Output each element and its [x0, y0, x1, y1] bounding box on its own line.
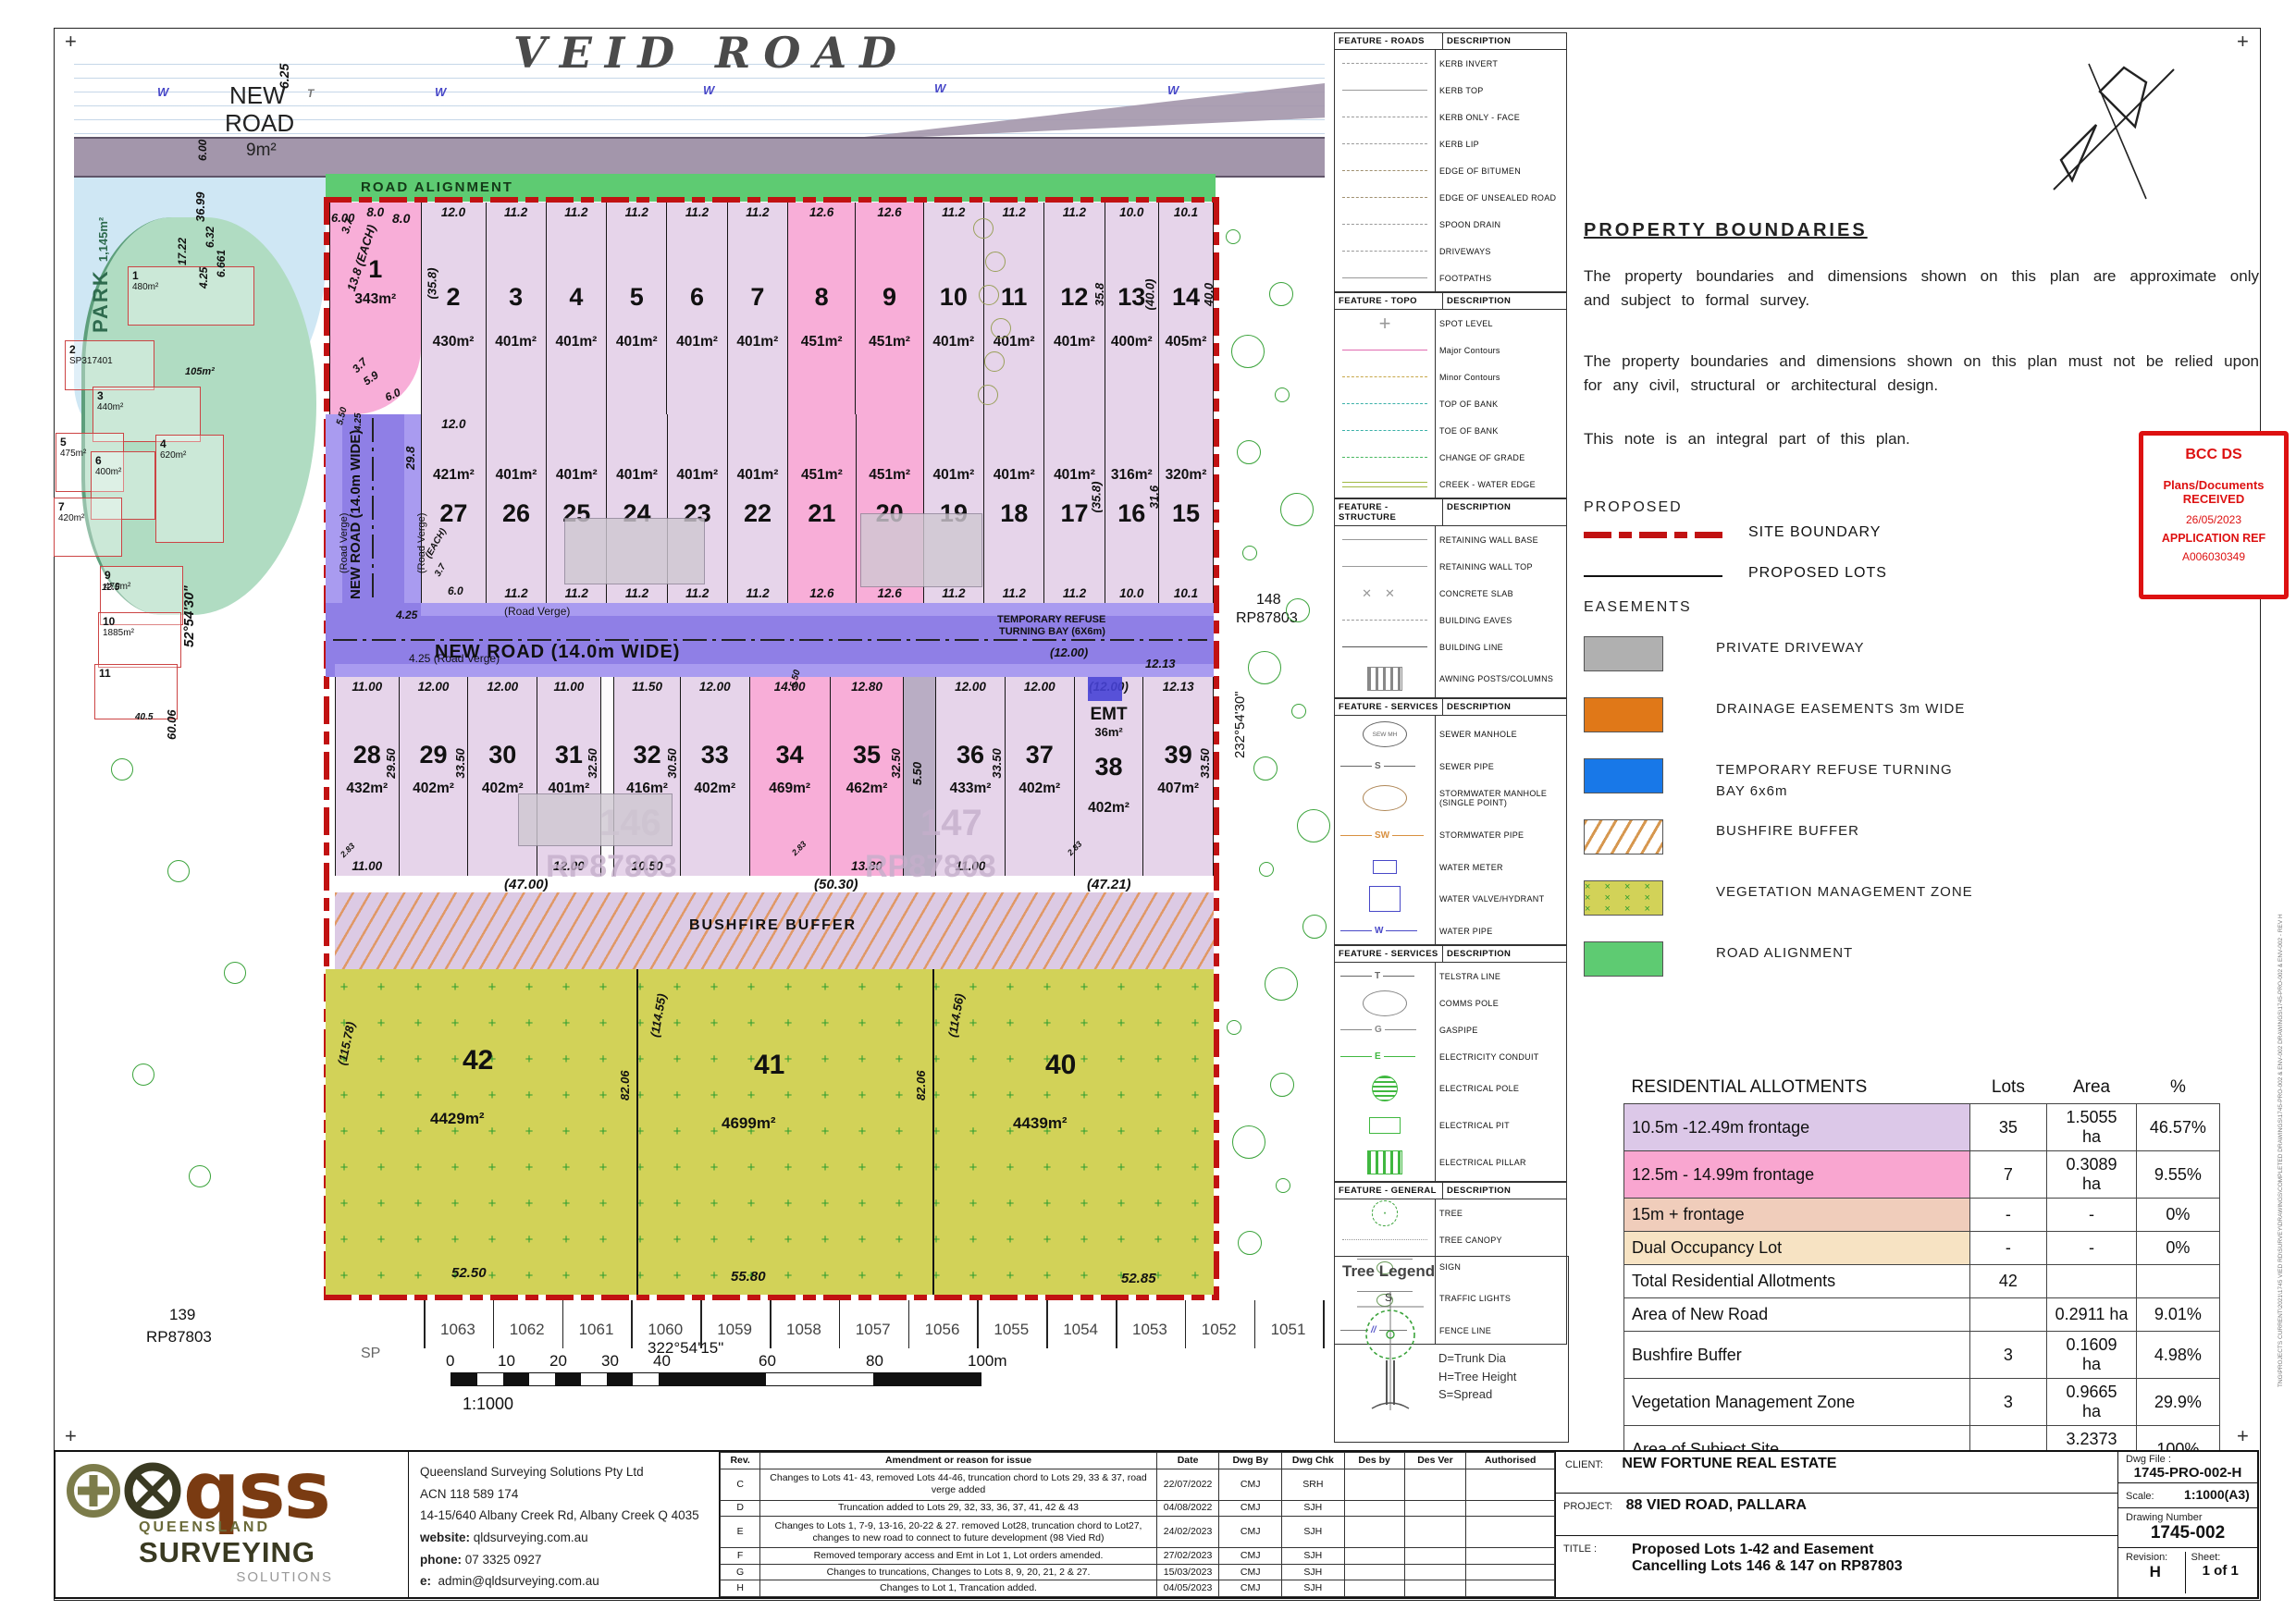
revision-cell: [1404, 1469, 1466, 1500]
legend-label: BUILDING EAVES: [1436, 614, 1566, 627]
legend-label: ELECTRICAL POLE: [1436, 1082, 1566, 1095]
boundary-tick: [908, 1300, 910, 1348]
allotments-row: Vegetation Management Zone30.9665 ha29.9…: [1624, 1379, 2220, 1426]
legend-row: KERB INVERT: [1335, 50, 1566, 77]
lot-rear-width: 10.1: [1159, 586, 1213, 600]
qss-logo-circle-plus-icon: [65, 1462, 122, 1519]
revision-row: GChanges to truncations, Changes to Lots…: [721, 1564, 1555, 1580]
new-road-centerline: [333, 639, 1207, 641]
vmz-dim: 82.06: [618, 1070, 632, 1100]
lot-depth: (35.8): [425, 268, 438, 300]
road-verge-bottom-label: 4.25 (Road Verge): [409, 652, 500, 665]
neighbor-right-no: 148: [1256, 592, 1281, 609]
lot-frontage: 10.1: [1159, 205, 1213, 219]
legend-symbol-driveways-icon: [1335, 238, 1436, 264]
west-lot-2: 2SP317401: [65, 340, 154, 390]
easement-swatch-green: [1584, 941, 1663, 977]
tree-icon: [167, 860, 190, 882]
tree-icon: [1276, 1178, 1290, 1193]
lot-rear-width: 11.2: [984, 586, 1043, 600]
revision-cell: 27/02/2023: [1156, 1548, 1219, 1565]
client-name: NEW FORTUNE REAL ESTATE: [1622, 1456, 1836, 1471]
legend-label: CHANGE OF GRADE: [1436, 451, 1566, 464]
legend-label: GASPIPE: [1436, 1024, 1566, 1037]
lot-41-width: 55.80: [731, 1269, 766, 1285]
lot-number: 15: [1159, 499, 1213, 528]
legend-row: BUILDING LINE: [1335, 633, 1566, 660]
legend-symbol-gaspipe-icon: G: [1335, 1016, 1436, 1043]
legend-row: TOE OF BANK: [1335, 417, 1566, 444]
lot-area: 401m²: [487, 334, 546, 350]
legend-symbol-building-eaves-icon: [1335, 607, 1436, 633]
corner-mark: +: [65, 1424, 77, 1448]
legend-label: KERB ONLY - FACE: [1436, 111, 1566, 124]
legend-row: ELECTRICAL PIT: [1335, 1107, 1566, 1144]
lot-frontage: 11.2: [667, 205, 726, 219]
boundary-tick: [839, 1300, 841, 1348]
company-email: admin@qldsurveying.com.au: [438, 1574, 599, 1588]
boundary-tick: [977, 1300, 979, 1348]
lot-depth: (40.0): [1142, 278, 1156, 310]
lot-42-area: 4429m²: [430, 1110, 485, 1128]
temp-refuse-label-2: TURNING BAY (6X6m): [999, 626, 1105, 637]
lot-area: 432m²: [336, 781, 399, 797]
lot-area: 320m²: [1159, 467, 1213, 484]
boundary-tick: [700, 1300, 702, 1348]
legend-table-header: FEATURE - GENERAL: [1335, 1183, 1443, 1199]
lot-number: 37: [1006, 741, 1074, 769]
lot-17: 17401m²11.2(35.8): [1043, 414, 1104, 603]
legend-row: AWNING POSTS/COLUMNS: [1335, 660, 1566, 697]
lot-2: 12.02430m²(35.8): [421, 203, 486, 414]
legend-symbol-creek-water-edge-icon: [1335, 471, 1436, 498]
legend-symbol-edge-of-bitumen-icon: [1335, 157, 1436, 184]
allotments-cell: 46.57%: [2136, 1104, 2219, 1151]
tree-icon: [985, 252, 1006, 272]
lot-frontage: 11.2: [924, 205, 983, 219]
legend-symbol-kerb-only-face-icon: [1335, 104, 1436, 130]
legend-symbol-retaining-wall-top-icon: [1335, 553, 1436, 580]
dim-label: 6.661: [215, 250, 228, 277]
scale-tick-label: 40: [653, 1352, 671, 1371]
tree-legend-title: Tree Legend: [1335, 1257, 1568, 1286]
legend-symbol-kerb-lip-icon: [1335, 130, 1436, 157]
qss-logo-text: qss: [183, 1459, 329, 1523]
easement-label: BUSHFIRE BUFFER: [1716, 821, 1984, 842]
title-label: TITLE :: [1563, 1543, 1597, 1555]
lot-27: 12.027421m²: [421, 414, 486, 603]
lot-38: (12.00)38402m²EMT36m²: [1074, 677, 1143, 876]
allotments-header: Lots: [1969, 1071, 2047, 1104]
revision-cell: CMJ: [1219, 1580, 1282, 1597]
company-phone-label: phone:: [420, 1553, 462, 1567]
legend-row: COMMS POLE: [1335, 990, 1566, 1016]
lot-number: 8: [788, 283, 855, 312]
group-dim-3: (47.21): [1087, 877, 1131, 892]
legend-symbol-water-pipe-icon: W: [1335, 917, 1436, 944]
lot-7: 11.27401m²: [727, 203, 787, 414]
site-boundary-sample: [1584, 532, 1722, 538]
allotments-cell: Area of New Road: [1624, 1298, 1970, 1332]
lot-number: 6: [667, 283, 726, 312]
lot-34: 14.0034469m²: [749, 677, 830, 876]
corner-mark: +: [2237, 30, 2249, 54]
lot-area: 401m²: [547, 334, 606, 350]
lot-frontage: 12.0: [422, 205, 486, 219]
legend-row: GGASPIPE: [1335, 1016, 1566, 1043]
neighbor-lot-number: 1055: [994, 1321, 1029, 1339]
tree-icon: [1231, 335, 1265, 368]
legend-row: +SPOT LEVEL: [1335, 310, 1566, 337]
project-label: PROJECT:: [1563, 1501, 1612, 1512]
revision-header: Des Ver: [1404, 1453, 1466, 1469]
tree-icon: [1238, 1231, 1262, 1255]
lot-4: 11.24401m²: [546, 203, 606, 414]
dim-label: 17.22: [176, 238, 189, 265]
allotments-row: 15m + frontage--0%: [1624, 1199, 2220, 1232]
legend-row: ELECTRICAL POLE: [1335, 1070, 1566, 1107]
allotments-row: Bushfire Buffer30.1609 ha4.98%: [1624, 1332, 2220, 1379]
temp-refuse-label-1: TEMPORARY REFUSE: [997, 614, 1105, 625]
lot-29: 12.0029402m²33.50: [399, 677, 468, 876]
lot-22: 22401m²11.2: [727, 414, 787, 603]
revision-cell: [1404, 1500, 1466, 1517]
lot-frontage: 12.00: [936, 680, 1005, 694]
legend-row: WATER METER: [1335, 854, 1566, 880]
lot-26: 26401m²11.2: [486, 414, 546, 603]
dim-label: W: [703, 83, 714, 97]
allotments-header: RESIDENTIAL ALLOTMENTS: [1624, 1071, 1970, 1104]
lot-area: 401m²: [487, 467, 546, 484]
legend-label: KERB LIP: [1436, 138, 1566, 151]
legend-label: TREE: [1436, 1207, 1566, 1220]
lot-area: 407m²: [1143, 781, 1213, 797]
tree-icon: [132, 1064, 154, 1086]
allotments-header: Area: [2047, 1071, 2137, 1104]
legend-symbol-kerb-invert-icon: [1335, 50, 1436, 77]
allotments-cell: 42: [1969, 1265, 2047, 1298]
west-lot-number: 4: [156, 436, 223, 450]
veid-road-title: VEID ROAD: [513, 28, 909, 78]
legend-row: KERB TOP: [1335, 77, 1566, 104]
legend-row: CHANGE OF GRADE: [1335, 444, 1566, 471]
lot-number: 26: [487, 499, 546, 528]
lot-area: 430m²: [422, 334, 486, 350]
revision-row: DTruncation added to Lots 29, 32, 33, 36…: [721, 1500, 1555, 1517]
legend-label: TREE CANOPY: [1436, 1234, 1566, 1247]
tree-icon: [973, 218, 994, 239]
lot-depth: 32.50: [889, 748, 903, 779]
legend-row: Major Contours: [1335, 337, 1566, 363]
allotments-cell: -: [2047, 1199, 2137, 1232]
legend-row: RETAINING WALL TOP: [1335, 553, 1566, 580]
drawing-title-1: Proposed Lots 1-42 and Easement: [1632, 1542, 2110, 1558]
allotments-cell: 29.9%: [2136, 1379, 2219, 1426]
neighbor-lot-number: 1056: [925, 1321, 960, 1339]
lot-6: 11.26401m²: [666, 203, 726, 414]
revision-cell: [1344, 1564, 1404, 1580]
dim-label: 40.5: [135, 712, 153, 722]
lot-frontage: 12.00: [468, 680, 537, 694]
ghost-lot-147: 147: [920, 803, 982, 844]
tree-icon: [1232, 1125, 1265, 1159]
legend-symbol-tree-canopy-icon: [1335, 1226, 1436, 1253]
lot-frontage: 11.00: [537, 680, 600, 694]
allotments-cell: Dual Occupancy Lot: [1624, 1232, 1970, 1265]
revision-row: CChanges to Lots 41- 43, removed Lots 44…: [721, 1469, 1555, 1500]
qss-logo-circle-x-icon: [122, 1460, 183, 1521]
new-road-vertical-label: NEW ROAD (14.0m WIDE): [348, 430, 364, 599]
legend-symbol-electrical-pillar-icon: [1335, 1144, 1436, 1181]
allotments-cell: 9.55%: [2136, 1151, 2219, 1199]
allotments-row: Total Residential Allotments42: [1624, 1265, 2220, 1298]
temp-refuse-dim: (12.00): [1050, 646, 1088, 659]
lot-depth: 33.50: [990, 748, 1004, 779]
dim-label: 12.5: [102, 583, 119, 593]
lot-area: 402m²: [681, 781, 749, 797]
road-verge-label-w: (Road Verge): [339, 513, 350, 573]
dwgnum-value: 1745-002: [2126, 1523, 2250, 1543]
revision-row: FRemoved temporary access and Emt in Lot…: [721, 1548, 1555, 1565]
legend-label: CREEK - WATER EDGE: [1436, 478, 1566, 491]
lot-area: 400m²: [1105, 334, 1158, 350]
west-lot-area: 620m²: [156, 450, 223, 461]
allotments-cell: 4.98%: [2136, 1332, 2219, 1379]
lot-rear-width: 11.2: [728, 586, 787, 600]
bearing-right: 232°54'30": [1232, 691, 1248, 758]
lot-41-area: 4699m²: [722, 1114, 776, 1133]
lot-9: 12.69451m²: [855, 203, 922, 414]
legend-symbol-major-contours-icon: [1335, 337, 1436, 363]
revision-cell: SJH: [1282, 1500, 1345, 1517]
lot-row-2: 12.027421m²26401m²11.225401m²11.224401m²…: [421, 414, 1214, 603]
legend-label: STORMWATER MANHOLE (SINGLE POINT): [1436, 787, 1566, 809]
legend-row: ELECTRICAL PILLAR: [1335, 1144, 1566, 1181]
road-verge-top-label: (Road Verge): [504, 605, 570, 618]
revision-cell: CMJ: [1219, 1564, 1282, 1580]
sp-partial-label: SP: [361, 1346, 380, 1362]
lot-number: 4: [547, 283, 606, 312]
legend-row: BUILDING EAVES: [1335, 607, 1566, 633]
west-lot-area: 440m²: [93, 402, 200, 412]
lot-area: 433m²: [936, 781, 1005, 797]
legend-label: KERB TOP: [1436, 84, 1566, 97]
legend-symbol-toe-of-bank-icon: [1335, 417, 1436, 444]
lot-depth: (35.8): [1089, 481, 1103, 512]
legend-symbol-spoon-drain-icon: [1335, 211, 1436, 238]
dim-label: W: [435, 85, 446, 99]
road-verge-label-e: (Road Verge): [416, 513, 427, 573]
legend-label: BUILDING LINE: [1436, 641, 1566, 654]
legend-label: RETAINING WALL TOP: [1436, 560, 1566, 573]
neighbor-lot-number: 1063: [440, 1321, 475, 1339]
lot-frontage: 12.00: [1006, 680, 1074, 694]
allotments-cell: -: [1969, 1232, 2047, 1265]
lot-rear-width: 11.00: [336, 859, 399, 873]
lot-frontage: 12.80: [831, 680, 904, 694]
lot-12: 11.212401m²35.8: [1043, 203, 1104, 414]
west-lot-area: SP317401: [66, 356, 154, 366]
dwgnum-label: Drawing Number: [2126, 1512, 2250, 1523]
dim-label: 4.25: [353, 413, 364, 431]
legend-label: DRIVEWAYS: [1436, 245, 1566, 258]
legend-row: STORMWATER MANHOLE (SINGLE POINT): [1335, 780, 1566, 817]
company-web: qldsurveying.com.au: [474, 1531, 588, 1544]
lot-number: 22: [728, 499, 787, 528]
tree-icon: [1248, 651, 1281, 684]
company-acn: ACN 118 589 174: [420, 1483, 711, 1506]
neighbor-lot-number: 1053: [1132, 1321, 1167, 1339]
company-name: Queensland Surveying Solutions Pty Ltd: [420, 1461, 711, 1483]
lot-area: 469m²: [750, 781, 830, 797]
legend-table: FEATURE - ROADSDESCRIPTIONKERB INVERTKER…: [1334, 32, 1567, 292]
tree-icon: [1286, 598, 1310, 622]
tree-icon: [1226, 229, 1241, 244]
sheet-value: 1 of 1: [2191, 1563, 2251, 1579]
lot-frontage: 11.2: [728, 205, 787, 219]
allotments-cell: [2047, 1265, 2137, 1298]
easement-swatch-gray: [1584, 636, 1663, 671]
west-lot-number: 2: [66, 341, 154, 356]
tree-icon: [1253, 756, 1278, 781]
lot-area: 343m²: [330, 291, 421, 308]
legend-row: WWATER PIPE: [1335, 917, 1566, 944]
legend-label: SEWER PIPE: [1436, 760, 1566, 773]
west-lot-number: 11: [95, 665, 177, 680]
lot-area: 401m²: [924, 334, 983, 350]
lot-number: 1: [330, 255, 421, 284]
lot-area: 451m²: [857, 467, 923, 484]
emt-label: EMT: [1075, 705, 1143, 725]
lot-frontage: 12.0: [422, 417, 486, 431]
dim-label: W: [157, 85, 168, 99]
stamp-line-1: BCC DS: [2143, 447, 2284, 463]
allotments-cell: Bushfire Buffer: [1624, 1332, 1970, 1379]
lot-42-41-boundary: [636, 969, 638, 1295]
legend-label: ELECTRICAL PIT: [1436, 1119, 1566, 1132]
legend-symbol-stormwater-pipe-icon: SW: [1335, 817, 1436, 854]
dwgfile-label: Dwg File :: [2126, 1454, 2250, 1465]
legend-table-header: FEATURE - ROADS: [1335, 33, 1443, 49]
lot-35: 12.8035462m²13.8032.50: [830, 677, 904, 876]
allotments-row: 10.5m -12.49m frontage351.5055 ha46.57%: [1624, 1104, 2220, 1151]
revision-cell: [1344, 1500, 1404, 1517]
dwgfile-value: 1745-PRO-002-H: [2126, 1465, 2250, 1481]
lot-number: 21: [788, 499, 855, 528]
revision-cell: [1404, 1548, 1466, 1565]
revision-cell: [1466, 1500, 1555, 1517]
sheet-label: Sheet:: [2191, 1552, 2251, 1563]
lot-15: 15320m²10.1: [1158, 414, 1214, 603]
legend-symbol-electrical-pole-icon: [1335, 1070, 1436, 1107]
revision-label: Revision:: [2126, 1552, 2185, 1563]
company-phone: 07 3325 0927: [465, 1553, 542, 1567]
dim-label: 6.25: [277, 64, 291, 89]
lot-33: 12.0033402m²: [680, 677, 749, 876]
revision-header: Authorised: [1466, 1453, 1555, 1469]
logo-solutions: SOLUTIONS: [139, 1569, 333, 1585]
tree-legend-s: S=Spread: [1438, 1385, 1516, 1404]
lot-area: 451m²: [788, 467, 855, 484]
revision-cell: [1466, 1469, 1555, 1500]
company-cell: Queensland Surveying Solutions Pty Ltd A…: [409, 1452, 720, 1597]
revision-header: Date: [1156, 1453, 1219, 1469]
legend-symbol-comms-pole-icon: [1335, 990, 1436, 1016]
lot-area: 401m²: [984, 467, 1043, 484]
revision-cell: 15/03/2023: [1156, 1564, 1219, 1580]
legend-row: SWSTORMWATER PIPE: [1335, 817, 1566, 854]
lot-rear-width: 11.2: [547, 586, 606, 600]
dim-label: 4.25: [197, 267, 210, 289]
legend-label: SPOON DRAIN: [1436, 218, 1566, 231]
legend-row: TREE CANOPY: [1335, 1226, 1566, 1253]
revision-cell: [1466, 1564, 1555, 1580]
temp-refuse-dim-2: 12.13: [1145, 657, 1176, 670]
lot-40-number: 40: [1045, 1050, 1076, 1081]
lot-8: 12.68451m²: [787, 203, 855, 414]
new-road-top-area: 9m²: [246, 141, 277, 161]
revision-cell: [1344, 1469, 1404, 1500]
lot-area: 401m²: [924, 467, 983, 484]
boundary-tick: [1046, 1300, 1048, 1348]
lot-41-number: 41: [754, 1050, 784, 1081]
allotments-header: %: [2136, 1071, 2219, 1104]
lot-depth: 40.0: [1202, 282, 1216, 305]
legend-label: ELECTRICAL PILLAR: [1436, 1156, 1566, 1169]
company-email-label: e:: [420, 1574, 431, 1588]
lot-42-number: 42: [463, 1045, 493, 1076]
company-address: 14-15/640 Albany Creek Rd, Albany Creek …: [420, 1505, 711, 1527]
lot-21: 21451m²12.6: [787, 414, 855, 603]
tree-icon: [984, 351, 1005, 372]
legend-table-header: FEATURE - SERVICES: [1335, 699, 1443, 715]
legend-label: WATER VALVE/HYDRANT: [1436, 892, 1566, 905]
easement-swatch-veg: × × × × × × × × × × × × × × ×: [1584, 880, 1663, 916]
lot-number: 9: [856, 283, 922, 312]
tree-icon: [1291, 704, 1306, 719]
legend-symbol-tree-icon: ·: [1335, 1199, 1436, 1226]
lot-frontage: 12.13: [1143, 680, 1213, 694]
lot-rear-width: 11.2: [1044, 586, 1104, 600]
lot-frontage: 11.00: [336, 680, 399, 694]
west-lot-area: 1885m²: [99, 628, 180, 638]
lot-11: 11.211401m²: [983, 203, 1043, 414]
allotments-cell: 0%: [2136, 1199, 2219, 1232]
boundary-tick: [562, 1300, 564, 1348]
easement-swatch-hatch: [1584, 819, 1663, 855]
tree-icon: [979, 285, 999, 305]
allotments-cell: 7: [1969, 1151, 2047, 1199]
revision-header: Dwg By: [1219, 1453, 1282, 1469]
allotments-cell: 0.1609 ha: [2047, 1332, 2137, 1379]
allotments-cell: Vegetation Management Zone: [1624, 1379, 1970, 1426]
legend-row: EDGE OF BITUMEN: [1335, 157, 1566, 184]
lot-rear-width: 11.2: [668, 586, 727, 600]
west-lot-4: 4620m²: [155, 435, 224, 543]
lot-area: 401m²: [728, 334, 787, 350]
tree-legend-h: H=Tree Height: [1438, 1368, 1516, 1386]
tree-legend-icon: S: [1344, 1286, 1437, 1416]
legend-symbol-water-meter-icon: [1335, 854, 1436, 880]
dim-label: W: [1167, 83, 1179, 97]
legend-row: KERB ONLY - FACE: [1335, 104, 1566, 130]
legend-table-header: FEATURE - STRUCTURE: [1335, 499, 1443, 525]
tree-icon: [1297, 809, 1330, 842]
allotments-row: 12.5m - 14.99m frontage70.3089 ha9.55%: [1624, 1151, 2220, 1199]
lot-14: 10.114405m²40.0: [1158, 203, 1214, 414]
allotments-cell: 15m + frontage: [1624, 1199, 1970, 1232]
drawing-title-2: Cancelling Lots 146 & 147 on RP87803: [1632, 1558, 2110, 1575]
